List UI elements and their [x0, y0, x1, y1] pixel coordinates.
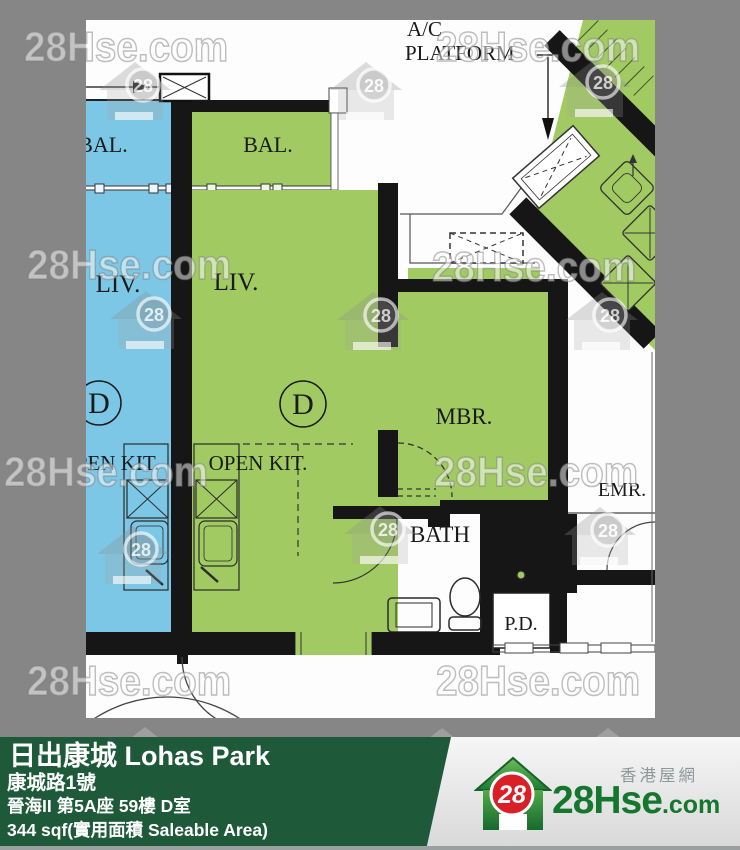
brand-logo-suffix: .com [662, 791, 720, 820]
label-open-kit: OPEN KIT. [209, 451, 308, 475]
unit-info: 晉海II 第5A座 59樓 D室 [7, 796, 191, 816]
floor-plan-drawing: A/C PLATFORM BAL. BAL. LIV. LIV. D D OPE… [0, 0, 740, 850]
label-mbr: MBR. [436, 404, 493, 429]
brand-logo-text: 28Hse [552, 779, 662, 823]
party-wall [171, 99, 192, 655]
label-unit: D [292, 388, 314, 421]
label-open-kit-left: OPEN KIT. [61, 451, 160, 475]
label-ac-line2: PLATFORM [405, 41, 515, 65]
brand-house-icon: 28 [474, 752, 552, 834]
floorplan-page: A/C PLATFORM BAL. BAL. LIV. LIV. D D OPE… [0, 0, 740, 850]
label-bal-left: BAL. [78, 132, 128, 157]
brand-logo: 28Hse .com [552, 779, 720, 823]
saleable-area: 344 sqf(實用面積 Saleable Area) [7, 820, 268, 840]
label-emr: EMR. [598, 479, 646, 501]
room-mbr [398, 268, 568, 514]
label-pd: P.D. [504, 613, 537, 635]
label-ac-line1: A/C [407, 17, 442, 41]
label-bath: BATH [410, 522, 470, 547]
brand-badge: 28 [497, 781, 526, 809]
label-bal: BAL. [243, 132, 293, 157]
estate-name: 日出康城 Lohas Park [9, 741, 270, 772]
adjacent-unit-blue [70, 100, 175, 632]
label-liv: LIV. [214, 269, 259, 296]
label-unit-left: D [88, 387, 110, 420]
bottom-divider [0, 846, 740, 850]
estate-address: 康城路1號 [7, 772, 96, 794]
label-liv-left: LIV. [96, 271, 141, 298]
